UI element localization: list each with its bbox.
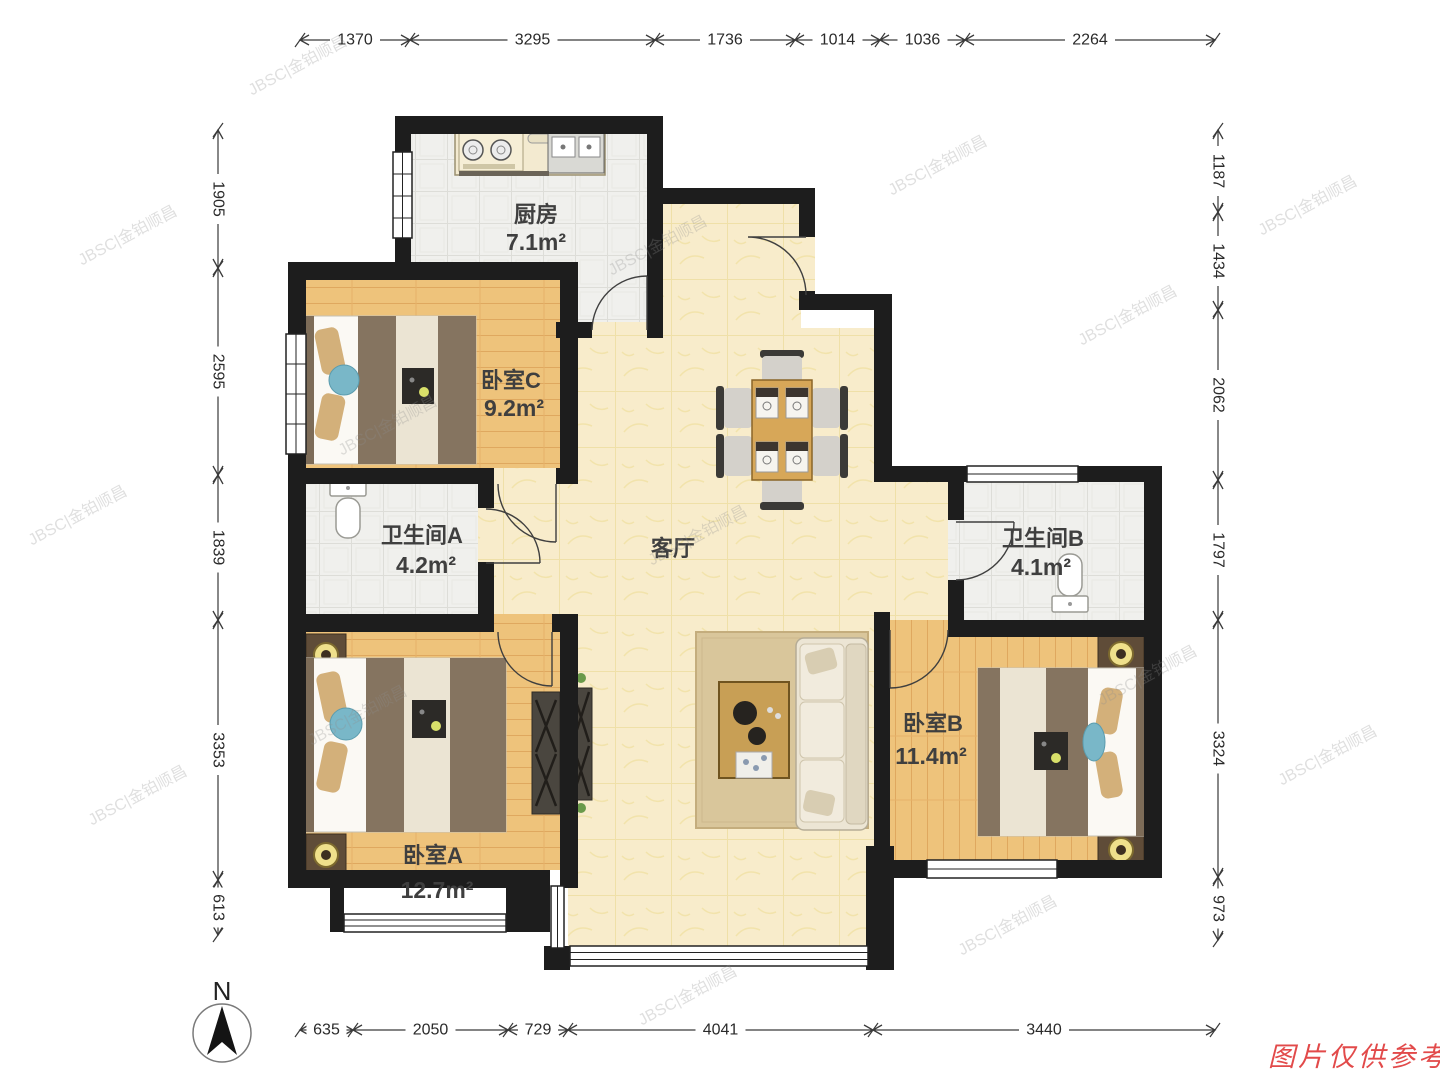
compass: N — [193, 976, 251, 1062]
bathroom-a-floor — [306, 484, 478, 614]
svg-text:JBSC|金铂顺昌: JBSC|金铂顺昌 — [635, 962, 740, 1029]
svg-text:2595: 2595 — [210, 354, 227, 390]
north-arrow-icon — [207, 1006, 237, 1055]
svg-text:1905: 1905 — [210, 181, 227, 217]
svg-text:1736: 1736 — [707, 32, 743, 49]
svg-text:3440: 3440 — [1026, 1022, 1062, 1039]
bathroom-b-window — [967, 466, 1078, 482]
north-label: N — [213, 976, 232, 1006]
bedroom-b-area: 11.4m² — [895, 743, 967, 769]
svg-text:635: 635 — [313, 1022, 340, 1039]
wardrobe — [532, 692, 560, 814]
svg-text:JBSC|金铂顺昌: JBSC|金铂顺昌 — [1275, 722, 1380, 789]
kitchen-counter — [455, 129, 605, 176]
bathroom-b-label: 卫生间B — [1002, 526, 1084, 551]
svg-text:JBSC|金铂顺昌: JBSC|金铂顺昌 — [85, 762, 190, 829]
watermark: JBSC|金铂顺昌 — [75, 202, 180, 269]
bedroom-a-label: 卧室A — [403, 843, 463, 868]
svg-text:3324: 3324 — [1210, 731, 1227, 767]
bedroom-b-window — [927, 860, 1057, 878]
dimension-line-bottom: 635205072940413440 — [295, 1020, 1220, 1040]
svg-text:1839: 1839 — [210, 530, 227, 566]
svg-text:2050: 2050 — [413, 1022, 449, 1039]
disclaimer-note: 图片仅供参考 — [1268, 1042, 1440, 1072]
svg-text:1434: 1434 — [1210, 243, 1227, 279]
dimension-line-top: 137032951736101410362264 — [295, 30, 1220, 50]
living-bay-side-window — [551, 886, 564, 948]
floor-plan: 厨房 7.1m² 卧室C 9.2m² 卫生间A 4.2m² 客厅 卫生间B 4.… — [0, 0, 1440, 1080]
bedroom-c-window — [286, 334, 306, 454]
kitchen-label: 厨房 — [514, 202, 558, 227]
svg-text:1187: 1187 — [1210, 154, 1227, 189]
burner — [463, 140, 483, 160]
kitchen-window — [393, 152, 412, 238]
svg-text:2062: 2062 — [1210, 377, 1227, 413]
bedroom-a-area: 12.7m² — [401, 877, 474, 903]
svg-text:729: 729 — [525, 1022, 552, 1039]
svg-text:JBSC|金铂顺昌: JBSC|金铂顺昌 — [245, 32, 350, 99]
sofa — [796, 638, 868, 830]
corridor-b-floor — [874, 482, 956, 622]
svg-text:3295: 3295 — [515, 32, 551, 49]
floor-plan-page: 厨房 7.1m² 卧室C 9.2m² 卫生间A 4.2m² 客厅 卫生间B 4.… — [0, 0, 1440, 1080]
bedroom-c-furniture — [304, 316, 476, 464]
kitchen-area: 7.1m² — [506, 229, 566, 255]
bathroom-a-area: 4.2m² — [396, 552, 456, 578]
svg-text:973: 973 — [1210, 895, 1227, 922]
burner — [491, 140, 511, 160]
svg-text:JBSC|金铂顺昌: JBSC|金铂顺昌 — [1075, 282, 1180, 349]
dimension-line-right: 11871434206217973324973 — [1208, 123, 1228, 947]
svg-text:1036: 1036 — [905, 32, 941, 49]
svg-text:4041: 4041 — [703, 1022, 739, 1039]
svg-text:3353: 3353 — [210, 732, 227, 768]
living-bay-window — [570, 946, 868, 966]
svg-text:JBSC|金铂顺昌: JBSC|金铂顺昌 — [885, 132, 990, 199]
svg-text:2264: 2264 — [1072, 32, 1108, 49]
bedroom-b-label: 卧室B — [903, 711, 963, 736]
bedroom-c-label: 卧室C — [481, 368, 541, 393]
svg-text:JBSC|金铂顺昌: JBSC|金铂顺昌 — [955, 892, 1060, 959]
dimension-line-left: 1905259518393353613 — [208, 123, 228, 942]
bathroom-b-area: 4.1m² — [1011, 554, 1071, 580]
bathroom-a-label: 卫生间A — [381, 523, 463, 548]
tray — [736, 752, 772, 778]
svg-text:JBSC|金铂顺昌: JBSC|金铂顺昌 — [1255, 172, 1360, 239]
svg-text:1014: 1014 — [820, 32, 856, 49]
svg-text:613: 613 — [210, 894, 227, 921]
living-set — [696, 632, 868, 830]
svg-text:JBSC|金铂顺昌: JBSC|金铂顺昌 — [25, 482, 130, 549]
svg-text:1797: 1797 — [1210, 532, 1227, 568]
bedroom-b-furniture — [978, 636, 1146, 868]
entry-floor — [655, 204, 801, 336]
bedroom-c-area: 9.2m² — [484, 395, 544, 421]
bedroom-a-bay-window — [344, 914, 506, 932]
